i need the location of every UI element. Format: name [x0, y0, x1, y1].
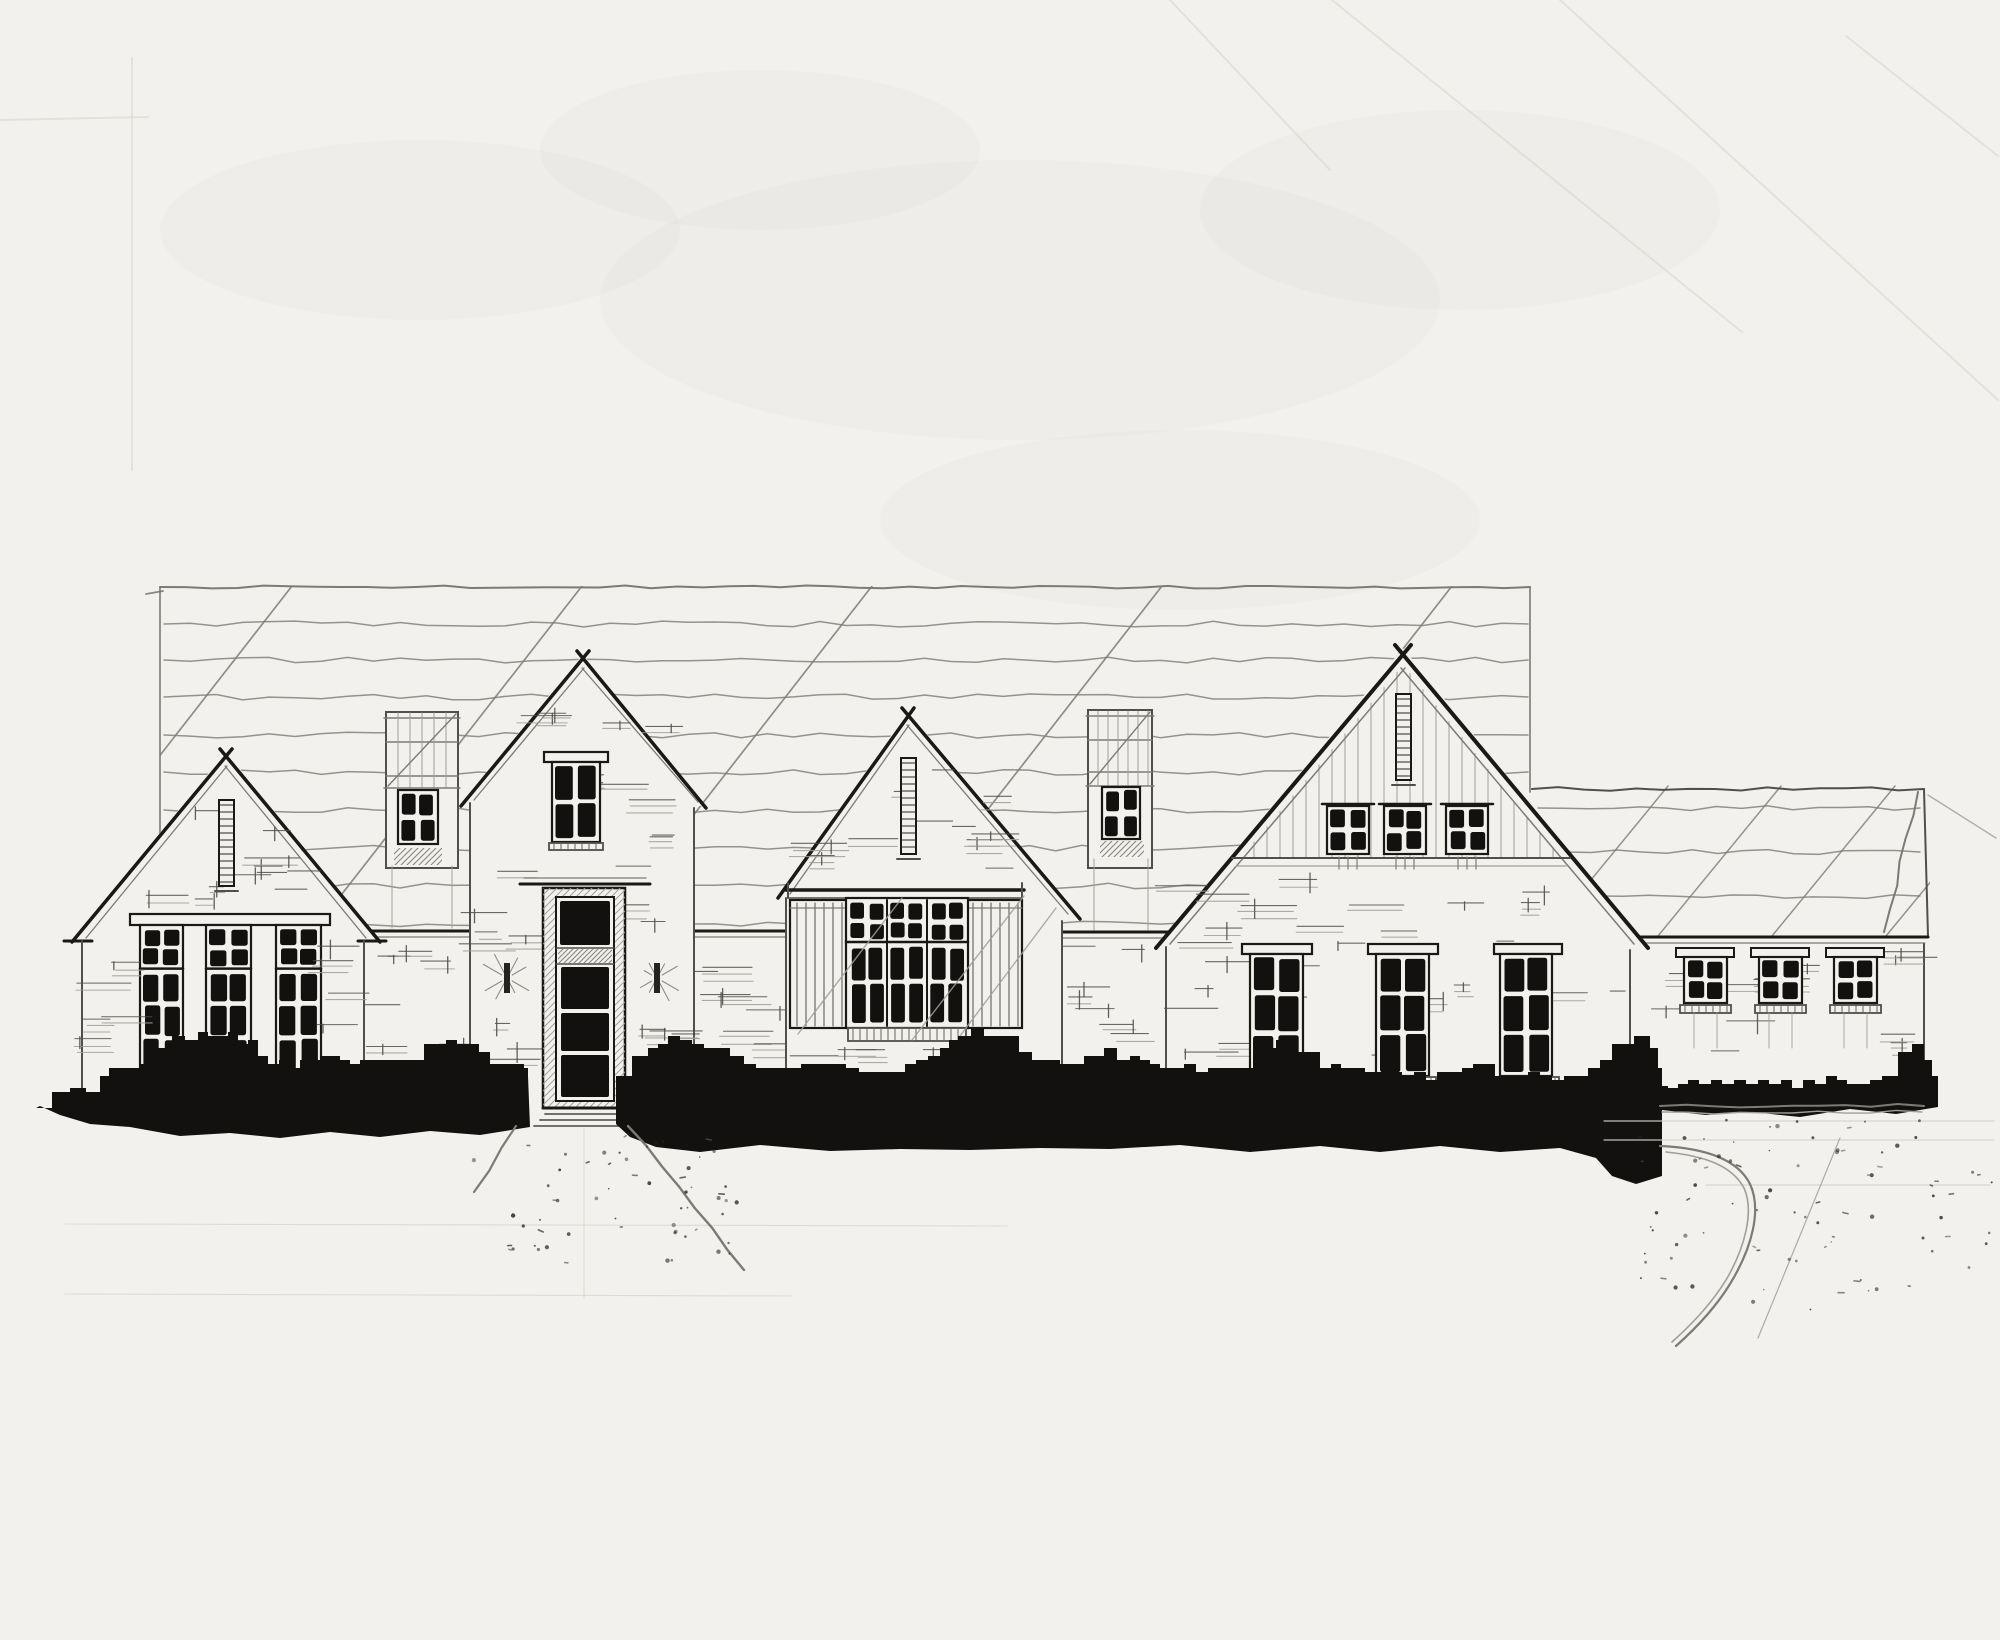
- left-chimney: [377, 712, 460, 928]
- elevation-drawing: [0, 0, 2000, 1640]
- right-chimney: [1084, 710, 1154, 930]
- right-gable: [1155, 645, 1648, 1128]
- driveway: [1639, 1119, 1993, 1346]
- sketch-page: [0, 0, 2000, 1640]
- paper-texture: [0, 0, 1998, 610]
